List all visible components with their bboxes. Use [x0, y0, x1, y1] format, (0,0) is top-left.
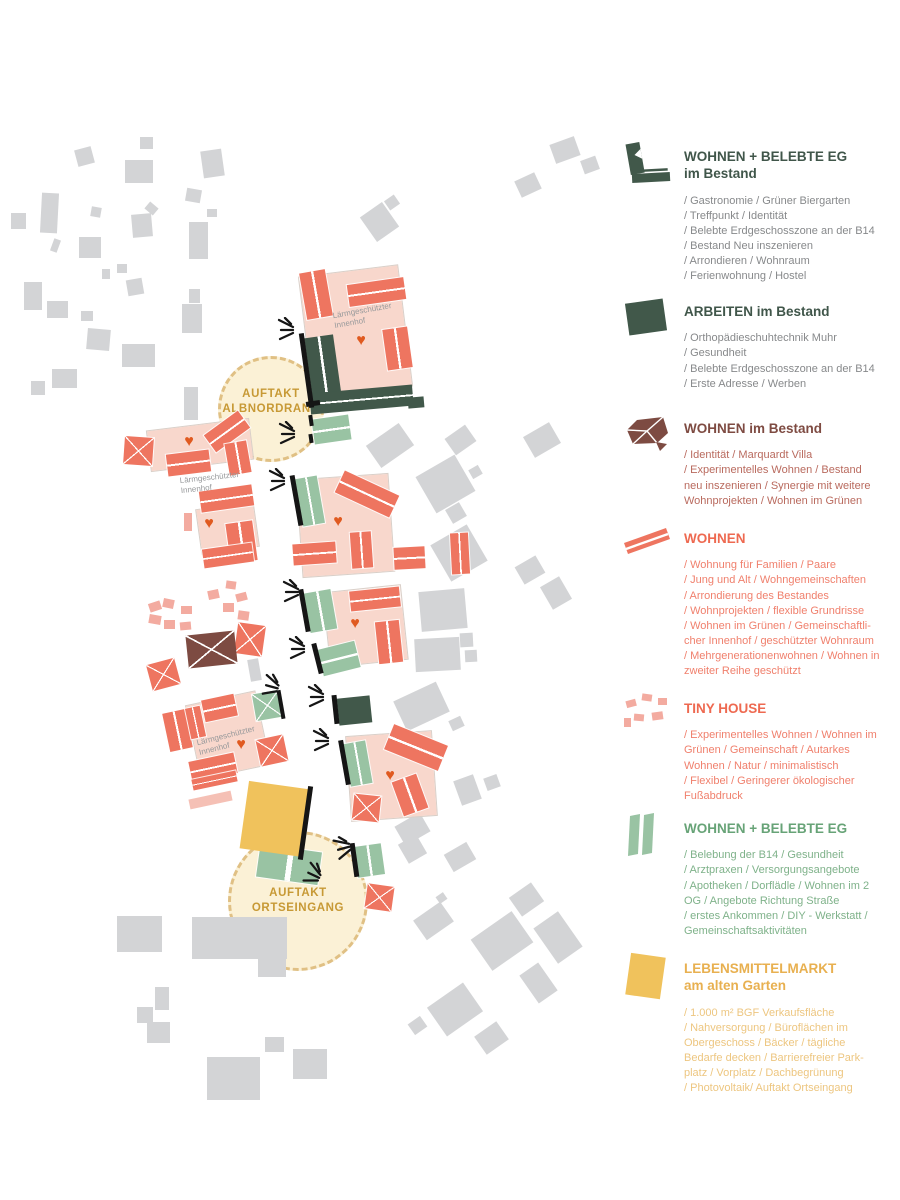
- plan-building-dark: [337, 695, 373, 725]
- entrance-burst-icon: [282, 636, 308, 662]
- context-building: [418, 588, 467, 632]
- context-building: [580, 156, 600, 175]
- entrance-burst-icon: [271, 317, 297, 343]
- context-building: [47, 301, 68, 318]
- plan-building-tiny: [225, 580, 236, 589]
- context-building: [427, 983, 483, 1037]
- legend-item-wohnen-belebte-eg-bestand: WOHNEN + BELEBTE EG im Bestand / Gastron…: [622, 140, 898, 285]
- plan-building-tiny: [180, 622, 192, 631]
- heart-icon: ♥: [385, 768, 395, 784]
- dark-green-corner-building-icon: [622, 140, 674, 192]
- dark-green-square-icon: [622, 295, 674, 347]
- context-building: [50, 238, 61, 253]
- legend-subtitle: im Bestand: [684, 166, 757, 181]
- context-building: [31, 381, 45, 395]
- legend-body: / Gastronomie / Grüner Biergarten / Tref…: [684, 194, 898, 285]
- context-building: [11, 213, 26, 229]
- context-building: [182, 304, 202, 333]
- context-building: [265, 1037, 284, 1052]
- legend-item-arbeiten-im-bestand: ARBEITEN im Bestand / Orthopädieschuhtec…: [622, 295, 898, 392]
- context-building: [453, 774, 482, 806]
- context-building: [185, 188, 202, 203]
- plan-building-salmon: [255, 734, 288, 766]
- context-building: [155, 987, 169, 1010]
- plan-building-tiny: [237, 610, 249, 620]
- context-building: [131, 213, 153, 238]
- context-building: [86, 328, 111, 351]
- context-building: [258, 955, 286, 977]
- legend-title: WOHNEN + BELEBTE EG: [684, 812, 898, 837]
- plan-building-salmon: [350, 531, 373, 568]
- context-building: [79, 237, 101, 258]
- context-building: [445, 425, 477, 456]
- plan-building-salmon: [292, 542, 336, 566]
- plan-building-tiny: [223, 603, 234, 612]
- legend-body: / Identität / Marquardt Villa / Experime…: [684, 448, 898, 509]
- context-building: [24, 282, 42, 310]
- plan-building-salmon: [146, 658, 181, 692]
- plan-building-brown: [185, 631, 237, 669]
- heart-icon: ♥: [333, 514, 343, 530]
- legend-item-wohnen: WOHNEN / Wohnung für Familien / Paare / …: [622, 522, 898, 680]
- green-twin-bars-icon: [622, 812, 674, 864]
- context-building: [122, 344, 155, 367]
- context-building: [125, 160, 153, 183]
- legend-subtitle: am alten Garten: [684, 978, 786, 993]
- legend-title: LEBENSMITTELMARKT am alten Garten: [684, 952, 898, 995]
- legend-title: TINY HOUSE: [684, 692, 898, 717]
- legend-item-tiny-house: TINY HOUSE / Experimentelles Wohnen / Wo…: [622, 692, 898, 804]
- context-building: [117, 916, 162, 952]
- legend-item-lebensmittelmarkt: LEBENSMITTELMARKT am alten Garten / 1.00…: [622, 952, 898, 1097]
- plan-building-green: [317, 641, 360, 676]
- legend-body: / Experimentelles Wohnen / Wohnen im Grü…: [684, 728, 898, 804]
- context-building: [366, 423, 414, 468]
- context-building: [549, 136, 580, 164]
- context-building: [519, 962, 557, 1003]
- context-building: [147, 1022, 170, 1043]
- context-building: [189, 222, 208, 259]
- context-building: [460, 633, 474, 648]
- heart-icon: ♥: [204, 516, 214, 532]
- plaza-ortseingang-label: AUFTAKT ORTSEINGANG: [252, 886, 344, 916]
- brown-hip-roof-icon: [622, 412, 674, 464]
- context-building: [207, 1057, 260, 1100]
- context-building: [137, 1007, 153, 1023]
- legend-item-wohnen-belebte-eg: WOHNEN + BELEBTE EG / Belebung der B14 /…: [622, 812, 898, 939]
- plan-building-salmon: [352, 794, 382, 823]
- context-building: [393, 682, 450, 732]
- site-plan: AUFTAKT ALBNORDRAND AUFTAKT ORTSEINGANG …: [0, 0, 640, 1200]
- context-building: [413, 902, 454, 941]
- legend-item-wohnen-im-bestand: WOHNEN im Bestand / Identität / Marquard…: [622, 412, 898, 509]
- context-building: [515, 555, 546, 584]
- context-building: [444, 842, 477, 872]
- context-building: [514, 172, 542, 198]
- context-building: [293, 1049, 327, 1079]
- legend-title: WOHNEN + BELEBTE EG im Bestand: [684, 140, 898, 183]
- legend-title: ARBEITEN im Bestand: [684, 295, 898, 320]
- plan-building-tiny: [235, 592, 248, 603]
- context-building: [468, 465, 483, 479]
- plan-building-dark: [408, 396, 425, 408]
- yellow-square-icon: [622, 952, 674, 1004]
- plan-building-salmon: [364, 883, 394, 912]
- context-building: [416, 455, 476, 514]
- context-building: [474, 1021, 509, 1055]
- context-building: [126, 278, 145, 297]
- plan-building-salmon: [382, 326, 412, 370]
- heart-icon: ♥: [356, 333, 366, 349]
- entrance-burst-icon: [306, 728, 332, 754]
- context-building: [192, 917, 287, 959]
- legend-body: / 1.000 m² BGF Verkaufsfläche / Nahverso…: [684, 1006, 898, 1097]
- plan-building-tiny: [181, 606, 192, 614]
- legend-body: / Belebung der B14 / Gesundheit / Arztpr…: [684, 848, 898, 939]
- plan-building-tiny: [184, 513, 192, 531]
- context-building: [40, 193, 59, 234]
- plan-building-salmon: [123, 436, 154, 466]
- plan-building-salmon: [450, 533, 470, 575]
- tiny-house-cluster-icon: [622, 692, 674, 744]
- context-building: [448, 716, 464, 731]
- context-building: [90, 206, 102, 218]
- salmon-roof-bar-icon: [622, 522, 674, 574]
- entrance-burst-icon: [262, 468, 288, 494]
- entrance-burst-icon: [272, 421, 298, 447]
- heart-icon: ♥: [350, 616, 360, 632]
- plan-building-tiny: [164, 620, 175, 629]
- heart-icon: ♥: [184, 434, 194, 450]
- plan-building-lightpink: [188, 791, 232, 810]
- plan-building-tiny: [148, 614, 161, 625]
- context-building: [207, 209, 217, 217]
- context-building: [509, 882, 544, 916]
- plan-building-salmon: [234, 622, 266, 657]
- context-building: [52, 369, 77, 388]
- legend-title: WOHNEN im Bestand: [684, 412, 898, 437]
- context-building: [483, 774, 501, 791]
- context-building: [414, 637, 461, 672]
- context-building: [465, 650, 478, 663]
- context-building: [184, 387, 198, 420]
- context-building: [200, 149, 225, 179]
- plan-building-tiny: [162, 598, 175, 609]
- context-building: [74, 146, 95, 167]
- context-building: [81, 311, 93, 321]
- entrance-burst-icon: [301, 684, 327, 710]
- context-building: [533, 911, 582, 963]
- plan-building-salmon: [393, 546, 425, 570]
- legend-body: / Wohnung für Familien / Paare / Jung un…: [684, 558, 898, 679]
- context-building: [140, 137, 153, 149]
- plan-building-salmon: [375, 620, 403, 664]
- context-building: [102, 269, 110, 279]
- context-building: [189, 289, 200, 303]
- context-building: [117, 264, 127, 273]
- plan-building-green: [311, 415, 351, 445]
- context-building: [408, 1016, 428, 1035]
- legend: WOHNEN + BELEBTE EG im Bestand / Gastron…: [622, 0, 898, 1200]
- context-building: [540, 576, 572, 610]
- legend-title: WOHNEN: [684, 522, 898, 547]
- plan-building-tiny: [207, 589, 220, 600]
- legend-body: / Orthopädieschuhtechnik Muhr / Gesundhe…: [684, 331, 898, 392]
- entrance-burst-icon: [276, 579, 302, 605]
- context-building: [523, 422, 561, 458]
- plan-building-tiny: [148, 600, 162, 612]
- context-building: [471, 911, 534, 971]
- site-plan-poster: AUFTAKT ALBNORDRAND AUFTAKT ORTSEINGANG …: [0, 0, 900, 1200]
